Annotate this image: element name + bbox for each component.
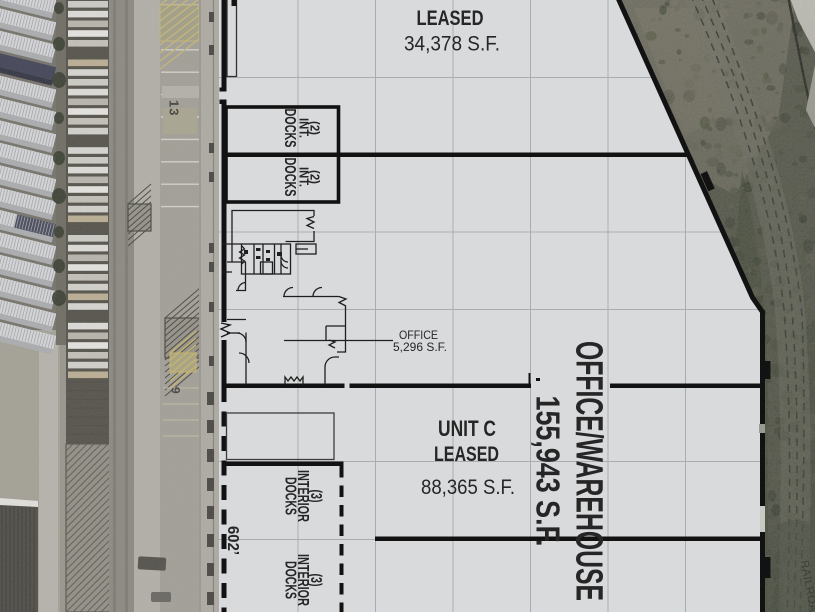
svg-text:LEASED: LEASED [417,6,484,30]
svg-text:DOCKS: DOCKS [281,477,298,515]
svg-text:88,365 S.F.: 88,365 S.F. [421,475,515,499]
svg-text:LEASED: LEASED [434,443,499,466]
svg-text:DOCKS: DOCKS [281,158,298,197]
svg-text:OFFICE/WAREHOUSE: OFFICE/WAREHOUSE [568,341,610,601]
svg-text:DOCKS: DOCKS [281,109,298,148]
svg-text:DOCKS: DOCKS [281,561,298,599]
svg-text:34,378 S.F.: 34,378 S.F. [404,32,500,56]
svg-text:155,943 S.F.: 155,943 S.F. [530,396,567,547]
svg-text:602’: 602’ [224,526,241,555]
svg-text:OFFICE: OFFICE [399,330,438,342]
svg-text:5,296 S.F.: 5,296 S.F. [393,342,447,354]
svg-text:UNIT C: UNIT C [438,416,496,441]
